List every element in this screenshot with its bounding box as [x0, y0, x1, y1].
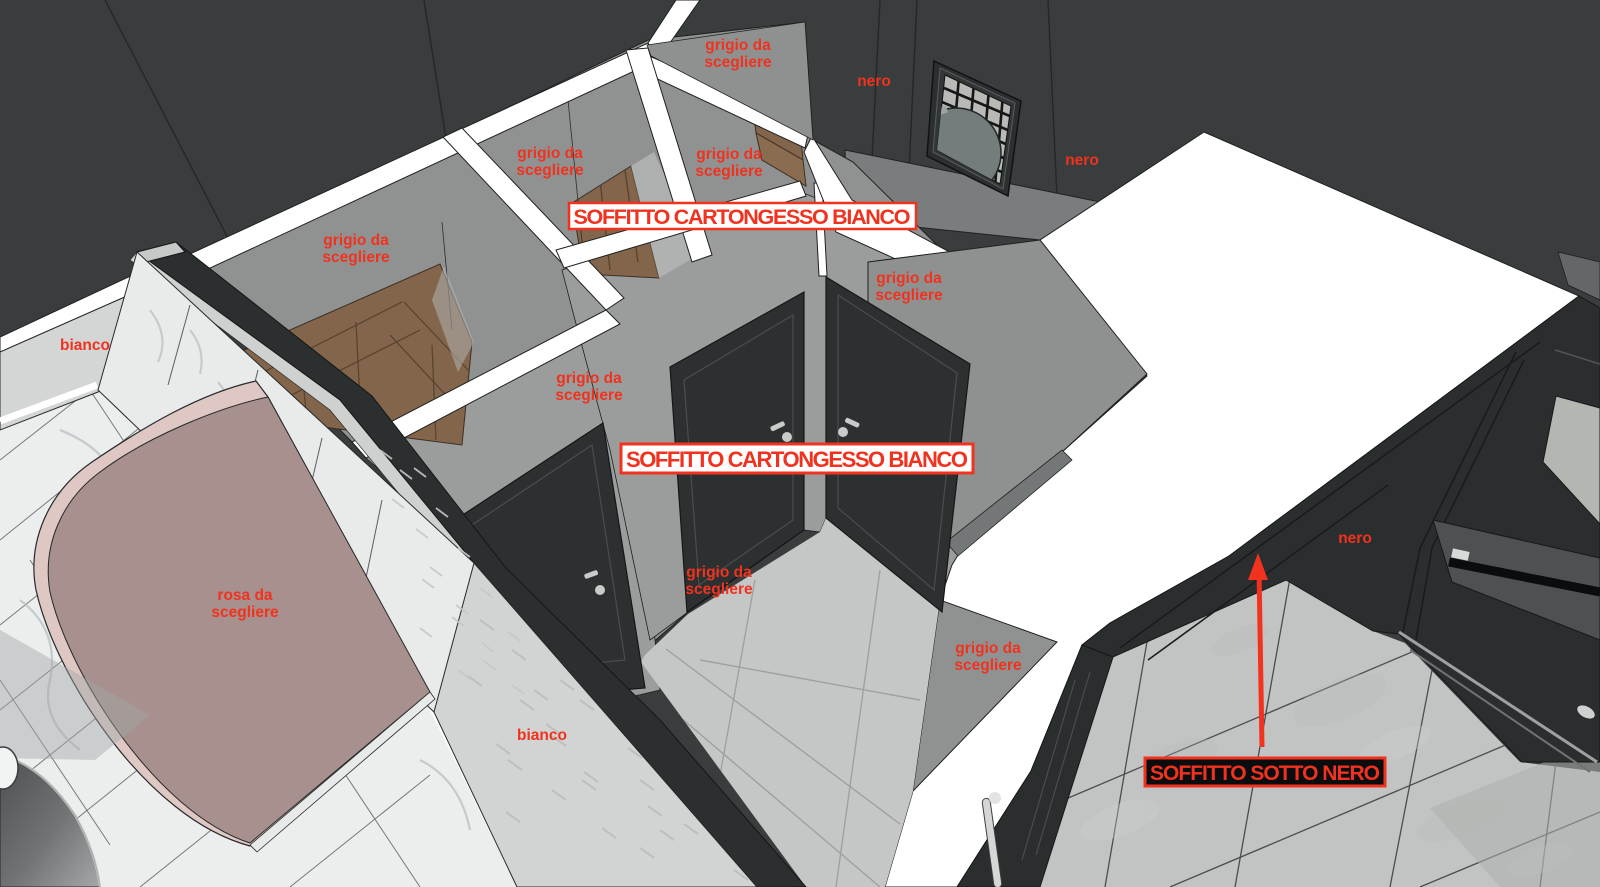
svg-text:nero: nero [857, 73, 891, 90]
svg-text:grigio da: grigio da [686, 564, 752, 581]
svg-text:scegliere: scegliere [685, 581, 753, 598]
svg-text:scegliere: scegliere [704, 54, 772, 71]
svg-text:grigio da: grigio da [556, 370, 622, 387]
svg-text:grigio da: grigio da [517, 145, 583, 162]
svg-text:SOFFITTO CARTONGESSO BIANCO: SOFFITTO CARTONGESSO BIANCO [626, 447, 968, 472]
svg-text:nero: nero [1338, 530, 1372, 547]
svg-text:scegliere: scegliere [516, 162, 584, 179]
svg-text:nero: nero [1065, 152, 1099, 169]
svg-text:scegliere: scegliere [954, 657, 1022, 674]
svg-text:grigio da: grigio da [955, 640, 1021, 657]
svg-text:scegliere: scegliere [695, 163, 763, 180]
svg-text:SOFFITTO CARTONGESSO BIANCO: SOFFITTO CARTONGESSO BIANCO [574, 205, 911, 229]
svg-text:scegliere: scegliere [322, 249, 390, 266]
svg-text:grigio da: grigio da [876, 270, 942, 287]
svg-text:grigio da: grigio da [323, 232, 389, 249]
svg-text:bianco: bianco [517, 727, 567, 744]
svg-text:grigio da: grigio da [696, 146, 762, 163]
svg-text:scegliere: scegliere [555, 387, 623, 404]
svg-text:grigio da: grigio da [705, 37, 771, 54]
svg-text:rosa da: rosa da [217, 587, 273, 604]
svg-text:SOFFITTO SOTTO NERO: SOFFITTO SOTTO NERO [1150, 762, 1380, 785]
svg-text:scegliere: scegliere [875, 287, 943, 304]
svg-text:bianco: bianco [60, 337, 110, 354]
svg-text:scegliere: scegliere [211, 604, 279, 621]
